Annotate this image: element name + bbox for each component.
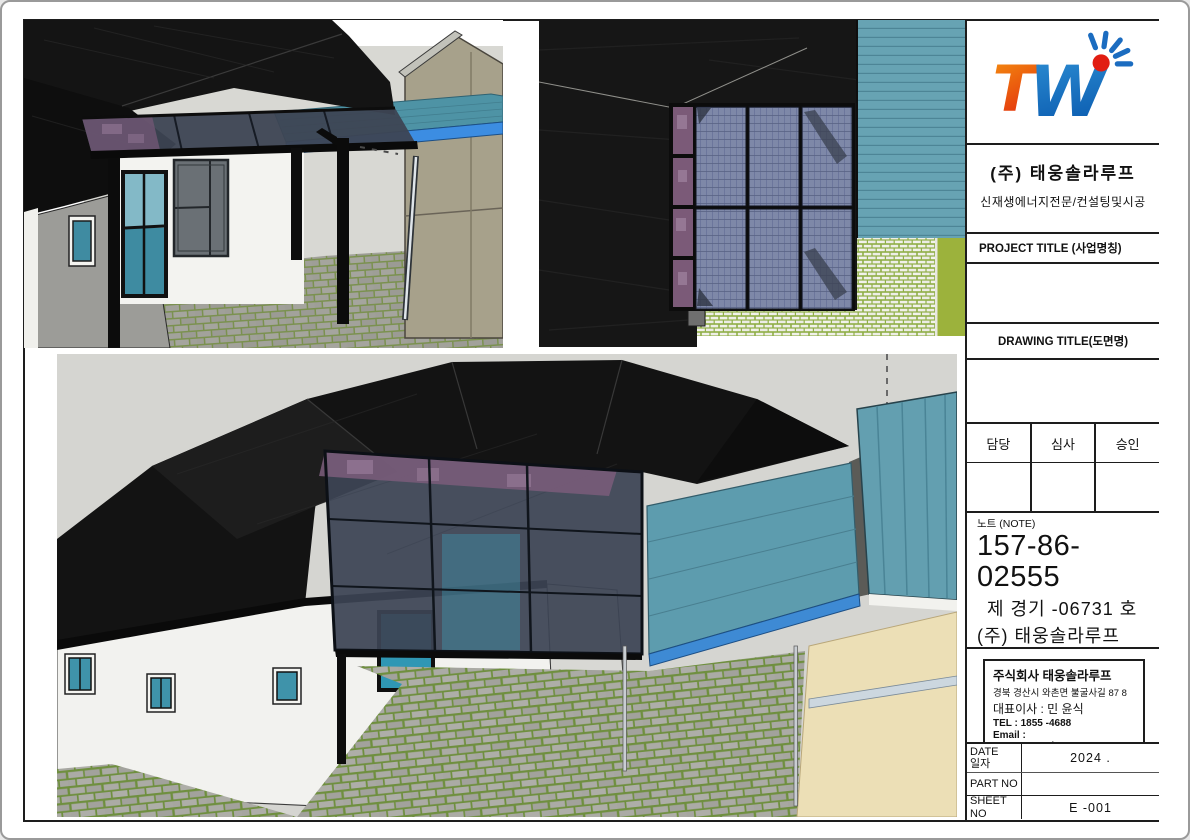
company-box-address: 경북 경산시 와촌면 불굴사길 87 8	[993, 685, 1139, 699]
date-row: DATE 일자 2024 .	[967, 742, 1159, 772]
approval-header-damdang: 담당	[967, 424, 1030, 462]
project-title-value[interactable]	[967, 262, 1159, 322]
v1-center-wall	[120, 152, 304, 304]
company-subtitle: 신재생에너지전문/컨설팅및시공	[967, 193, 1159, 210]
v1-purple-pane	[82, 116, 160, 154]
note-company-name: (주) 태웅솔라루프	[977, 622, 1153, 647]
company-name: (주) 태웅솔라루프	[967, 159, 1159, 184]
company-box-email: Email : taewoongsolar@naver.com	[993, 730, 1139, 742]
date-value[interactable]: 2024 .	[1022, 744, 1159, 772]
part-no-label: PART NO	[967, 773, 1022, 795]
company-cell: (주) 태웅솔라루프 신재생에너지전문/컨설팅및시공	[967, 143, 1159, 232]
v2-grass-block	[938, 238, 966, 336]
logo-sun-dot	[1093, 54, 1110, 71]
v1-small-window	[69, 216, 95, 266]
v2-teal-corrugated-roof	[857, 20, 965, 238]
license-number: 제 경기 -06731 호	[987, 595, 1153, 621]
approval-value-row	[967, 462, 1159, 511]
viewport-plan-view	[539, 20, 965, 347]
app-window: T W (주) 태웅솔라루프 신재생에너지전문/컨설팅및시공 PROJECT T…	[0, 0, 1190, 840]
approval-value-damdang[interactable]	[967, 463, 1030, 511]
company-box-name: 주식회사 태웅솔라루프	[993, 665, 1139, 684]
drawing-title-value[interactable]	[967, 358, 1159, 422]
company-box-tel: TEL : 1855 -4688	[993, 718, 1139, 729]
v1-big-window	[121, 170, 168, 298]
viewport-perspective-view	[24, 20, 503, 348]
sheet-no-label: SHEET NO	[967, 796, 1022, 819]
sheet-no-row: SHEET NO E -001	[967, 795, 1159, 819]
v1-door-panel	[174, 160, 228, 256]
part-no-row: PART NO	[967, 772, 1159, 795]
approval-value-simsa[interactable]	[1030, 463, 1097, 511]
project-title-label: PROJECT TITLE (사업명칭)	[967, 232, 1159, 262]
v3-tan-building	[797, 612, 957, 817]
tw-logo: T W	[967, 21, 1159, 141]
approval-header-row: 담당 심사 승인	[967, 422, 1159, 462]
date-label: DATE 일자	[967, 744, 1022, 772]
part-no-value[interactable]	[1022, 773, 1159, 795]
approval-value-seungin[interactable]	[1096, 463, 1159, 511]
v2-solar-array	[669, 103, 855, 311]
note-section: 노트 (NOTE) 157-86-02555 제 경기 -06731 호 (주)…	[967, 511, 1159, 647]
viewport-aerial-view	[57, 354, 957, 817]
company-info-cell: 주식회사 태웅솔라루프 경북 경산시 와촌면 불굴사길 87 8 대표이사 : …	[967, 647, 1159, 742]
approval-header-simsa: 심사	[1030, 424, 1097, 462]
v3-glass-canopy	[319, 451, 642, 660]
sheet-no-value[interactable]: E -001	[1022, 796, 1159, 819]
company-info-box: 주식회사 태웅솔라루프 경북 경산시 와촌면 불굴사길 87 8 대표이사 : …	[983, 659, 1145, 742]
v3-shed-roof	[857, 392, 957, 611]
title-block: T W (주) 태웅솔라루프 신재생에너지전문/컨설팅및시공 PROJECT T…	[965, 21, 1159, 820]
company-box-ceo: 대표이사 : 민 윤식	[993, 700, 1139, 717]
approval-header-seungin: 승인	[1096, 424, 1159, 462]
drawing-title-label: DRAWING TITLE(도면명)	[967, 322, 1159, 358]
business-number: 157-86-02555	[977, 531, 1153, 594]
logo-cell: T W	[967, 21, 1159, 143]
note-label: 노트 (NOTE)	[977, 516, 1153, 531]
